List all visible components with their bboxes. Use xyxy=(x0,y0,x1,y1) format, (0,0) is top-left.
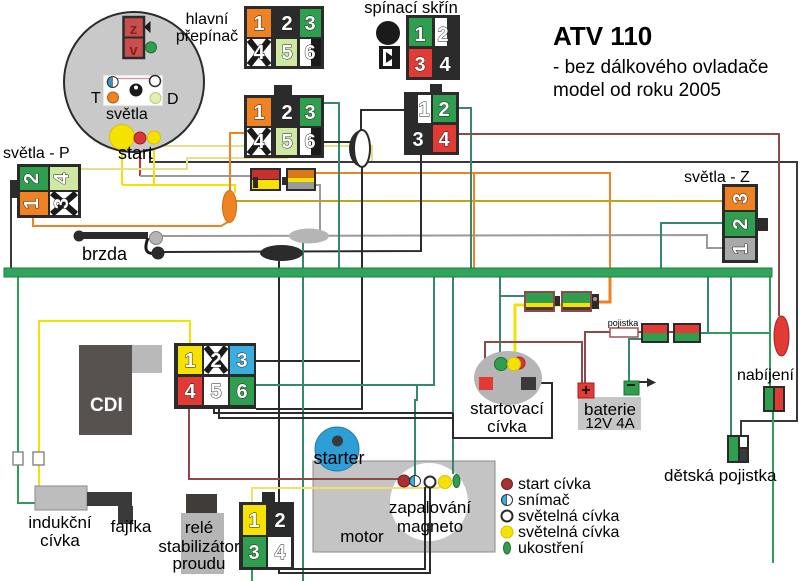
svg-text:2: 2 xyxy=(274,510,285,532)
svg-text:pojistka: pojistka xyxy=(608,318,639,328)
svg-text:relé: relé xyxy=(185,518,213,537)
svg-text:1: 1 xyxy=(253,13,264,35)
svg-text:1: 1 xyxy=(184,350,195,372)
svg-text:4: 4 xyxy=(438,129,450,151)
svg-text:3: 3 xyxy=(414,54,425,76)
svg-text:6: 6 xyxy=(236,381,247,403)
svg-text:spínací skřín: spínací skřín xyxy=(364,0,458,17)
svg-text:4: 4 xyxy=(439,54,451,76)
svg-text:přepínač: přepínač xyxy=(176,28,238,45)
svg-text:4: 4 xyxy=(253,42,265,64)
svg-text:D: D xyxy=(167,91,179,108)
svg-text:5: 5 xyxy=(281,131,292,153)
svg-text:brzda: brzda xyxy=(82,244,128,264)
svg-text:4: 4 xyxy=(184,381,196,403)
svg-text:1: 1 xyxy=(21,198,43,209)
svg-text:snímač: snímač xyxy=(518,492,570,509)
svg-text:CDI: CDI xyxy=(90,395,123,416)
svg-text:hlavní: hlavní xyxy=(186,11,229,28)
svg-text:3: 3 xyxy=(248,542,259,564)
svg-text:5: 5 xyxy=(210,381,221,403)
svg-text:1: 1 xyxy=(414,24,425,46)
svg-text:3: 3 xyxy=(304,13,315,35)
svg-text:dětská pojistka: dětská pojistka xyxy=(664,466,777,485)
svg-text:světelná cívka: světelná cívka xyxy=(518,524,619,541)
svg-text:1: 1 xyxy=(248,510,259,532)
svg-text:nabíjení: nabíjení xyxy=(737,367,794,384)
svg-text:starter: starter xyxy=(313,448,364,468)
svg-text:4: 4 xyxy=(51,172,73,184)
svg-text:motor: motor xyxy=(340,527,384,546)
svg-text:3: 3 xyxy=(730,193,752,204)
svg-text:světla - P: světla - P xyxy=(3,145,70,162)
svg-text:4: 4 xyxy=(274,542,286,564)
svg-text:světla - Z: světla - Z xyxy=(684,169,750,186)
svg-text:2: 2 xyxy=(281,102,292,124)
svg-text:6: 6 xyxy=(304,131,315,153)
svg-text:proudu: proudu xyxy=(173,554,226,573)
svg-text:3: 3 xyxy=(412,129,423,151)
svg-text:cívka: cívka xyxy=(40,531,80,550)
svg-text:3: 3 xyxy=(304,102,315,124)
svg-text:12V 4A: 12V 4A xyxy=(585,415,634,432)
svg-text:cívka: cívka xyxy=(487,417,527,436)
svg-text:5: 5 xyxy=(281,42,292,64)
svg-text:zapalování: zapalování xyxy=(389,498,472,517)
svg-text:2: 2 xyxy=(438,99,449,121)
svg-text:1: 1 xyxy=(253,102,264,124)
svg-text:1: 1 xyxy=(730,243,752,254)
svg-text:magneto: magneto xyxy=(397,517,463,536)
svg-text:fajfka: fajfka xyxy=(111,517,152,536)
svg-text:2: 2 xyxy=(21,173,43,184)
svg-text:start: start xyxy=(118,143,153,163)
svg-text:6: 6 xyxy=(304,42,315,64)
svg-text:model od roku 2005: model od roku 2005 xyxy=(553,80,721,101)
svg-text:startovací: startovací xyxy=(470,399,544,418)
svg-text:indukční: indukční xyxy=(28,513,92,532)
svg-text:- bez dálkového ovladače: - bez dálkového ovladače xyxy=(553,57,768,78)
svg-text:2: 2 xyxy=(730,218,752,229)
svg-text:3: 3 xyxy=(236,350,247,372)
svg-text:ukostření: ukostření xyxy=(518,540,584,557)
svg-text:1: 1 xyxy=(418,99,429,121)
svg-text:4: 4 xyxy=(253,131,265,153)
svg-text:2: 2 xyxy=(437,24,448,46)
svg-text:světla: světla xyxy=(106,106,148,123)
svg-text:z: z xyxy=(130,21,138,38)
svg-text:v: v xyxy=(129,42,138,59)
svg-text:start cívka: start cívka xyxy=(518,476,591,493)
svg-text:2: 2 xyxy=(281,13,292,35)
svg-text:3: 3 xyxy=(51,198,73,209)
svg-text:T: T xyxy=(91,90,101,107)
svg-text:2: 2 xyxy=(210,350,221,372)
svg-text:světelná cívka: světelná cívka xyxy=(518,508,619,525)
svg-text:ATV 110: ATV 110 xyxy=(553,21,652,51)
